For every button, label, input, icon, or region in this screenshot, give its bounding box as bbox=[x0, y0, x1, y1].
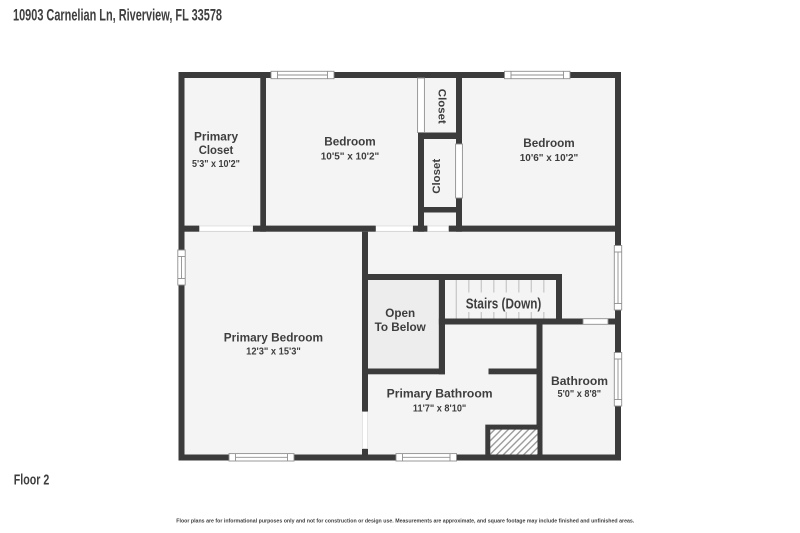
svg-text:5'0" x 8'8": 5'0" x 8'8" bbox=[558, 388, 602, 400]
svg-text:Primary Bathroom: Primary Bathroom bbox=[387, 387, 493, 401]
svg-text:Bedroom: Bedroom bbox=[324, 134, 376, 148]
svg-text:Closet: Closet bbox=[431, 158, 443, 193]
svg-text:Closet: Closet bbox=[436, 89, 448, 124]
svg-text:Primary: Primary bbox=[194, 129, 238, 143]
svg-text:10903 Carnelian Ln, Riverview,: 10903 Carnelian Ln, Riverview, FL 33578 bbox=[13, 7, 222, 25]
svg-text:12'3" x 15'3": 12'3" x 15'3" bbox=[246, 346, 301, 358]
svg-text:Open: Open bbox=[385, 306, 415, 320]
svg-text:To Below: To Below bbox=[375, 320, 427, 334]
svg-text:Stairs (Down): Stairs (Down) bbox=[466, 297, 542, 313]
svg-text:10'5" x 10'2": 10'5" x 10'2" bbox=[321, 151, 380, 163]
svg-text:Bathroom: Bathroom bbox=[551, 374, 608, 388]
svg-text:Primary Bedroom: Primary Bedroom bbox=[224, 330, 323, 344]
svg-text:5'3" x 10'2": 5'3" x 10'2" bbox=[192, 158, 240, 170]
svg-text:10'6" x 10'2": 10'6" x 10'2" bbox=[520, 152, 579, 164]
svg-text:Floor plans are for informatio: Floor plans are for informational purpos… bbox=[176, 519, 634, 525]
svg-text:Bedroom: Bedroom bbox=[523, 136, 575, 150]
svg-text:Closet: Closet bbox=[199, 143, 234, 157]
svg-text:Floor 2: Floor 2 bbox=[14, 473, 50, 489]
svg-text:11'7" x 8'10": 11'7" x 8'10" bbox=[413, 403, 466, 415]
